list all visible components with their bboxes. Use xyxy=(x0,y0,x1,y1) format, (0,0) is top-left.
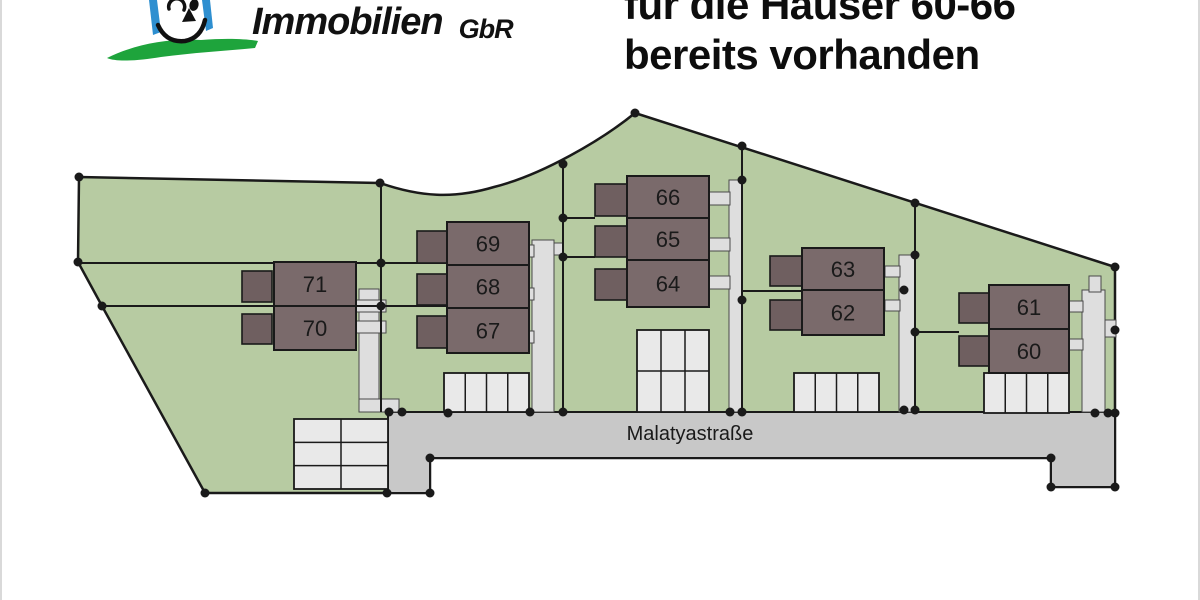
footpath-houses-64-66 xyxy=(709,192,730,205)
site-plan-page: 717069686766656463626160Malatyastraße Im… xyxy=(0,0,1200,600)
house-61-annex xyxy=(959,293,989,323)
vertex-dot xyxy=(1091,409,1100,418)
house-63-label: 63 xyxy=(831,257,855,282)
footpath-houses-62-63 xyxy=(885,266,900,277)
vertex-dot xyxy=(74,258,83,267)
vertex-dot xyxy=(911,406,920,415)
logo-left-eye xyxy=(169,0,185,10)
house-71-label: 71 xyxy=(303,272,327,297)
house-66-label: 66 xyxy=(656,185,680,210)
house-62-label: 62 xyxy=(831,301,855,326)
vertex-dot xyxy=(738,296,747,305)
vertex-dot xyxy=(1047,483,1056,492)
house-64-annex xyxy=(595,269,627,300)
vertex-dot xyxy=(376,179,385,188)
vertex-dot xyxy=(911,199,920,208)
house-70-annex xyxy=(242,314,272,344)
house-61-label: 61 xyxy=(1017,295,1041,320)
vertex-dot xyxy=(444,409,453,418)
footpath-houses-64-66 xyxy=(709,238,730,251)
vertex-dot xyxy=(377,302,386,311)
vertex-dot xyxy=(738,176,747,185)
vertex-dot xyxy=(1047,454,1056,463)
logo-suffix-text: GbR xyxy=(459,14,513,45)
house-68-label: 68 xyxy=(476,275,500,300)
footpath-houses-62-63 xyxy=(885,300,900,311)
vertex-dot xyxy=(526,408,535,417)
house-60-annex xyxy=(959,336,989,366)
vertex-dot xyxy=(631,109,640,118)
house-68-annex xyxy=(417,274,447,305)
logo-wordmark: Immobilien GbR xyxy=(252,1,513,45)
vertex-dot xyxy=(726,408,735,417)
house-67-annex xyxy=(417,316,447,348)
vertex-dot xyxy=(75,173,84,182)
street-label: Malatyastraße xyxy=(627,423,754,445)
house-69-annex xyxy=(417,231,447,263)
vertex-dot xyxy=(398,408,407,417)
vertex-dot xyxy=(377,259,386,268)
house-71-annex xyxy=(242,271,272,302)
house-64-label: 64 xyxy=(656,272,680,297)
house-62-annex xyxy=(770,300,802,330)
footpath-houses-64-66 xyxy=(709,276,730,289)
vertex-dot xyxy=(559,408,568,417)
footpath-houses-60-61 xyxy=(1069,301,1083,312)
headline: für die Häuser 60-66 bereits vorhanden xyxy=(624,0,1016,80)
footpath-houses-60-61 xyxy=(1089,276,1101,292)
logo-smile xyxy=(158,20,205,41)
vertex-dot xyxy=(385,408,394,417)
vertex-dot xyxy=(911,251,920,260)
vertex-dot xyxy=(1111,263,1120,272)
house-66-annex xyxy=(595,184,627,216)
vertex-dot xyxy=(426,454,435,463)
site-plan: 717069686766656463626160Malatyastraße xyxy=(2,0,1200,600)
vertex-dot xyxy=(383,489,392,498)
vertex-dot xyxy=(559,253,568,262)
house-60-label: 60 xyxy=(1017,339,1041,364)
vertex-dot xyxy=(98,302,107,311)
house-63-annex xyxy=(770,256,802,286)
vertex-dot xyxy=(738,142,747,151)
logo-smiley-icon xyxy=(105,0,275,72)
vertex-dot xyxy=(201,489,210,498)
vertex-dot xyxy=(900,286,909,295)
house-69-label: 69 xyxy=(476,232,500,257)
vertex-dot xyxy=(1104,409,1113,418)
vertex-dot xyxy=(900,406,909,415)
logo-brand-text: Immobilien xyxy=(252,1,443,44)
vertex-dot xyxy=(1111,326,1120,335)
footpath-houses-60-61 xyxy=(1082,290,1105,412)
vertex-dot xyxy=(1111,483,1120,492)
vertex-dot xyxy=(738,408,747,417)
house-70-label: 70 xyxy=(303,316,327,341)
footpath-houses-67-69 xyxy=(532,240,554,412)
vertex-dot xyxy=(559,214,568,223)
house-67-label: 67 xyxy=(476,319,500,344)
house-65-annex xyxy=(595,226,627,257)
headline-line1: für die Häuser 60-66 xyxy=(624,0,1016,30)
vertex-dot xyxy=(426,489,435,498)
footpath-houses-60-61 xyxy=(1069,339,1083,350)
house-65-label: 65 xyxy=(656,227,680,252)
vertex-dot xyxy=(559,160,568,169)
headline-line2: bereits vorhanden xyxy=(624,30,1016,80)
vertex-dot xyxy=(911,328,920,337)
